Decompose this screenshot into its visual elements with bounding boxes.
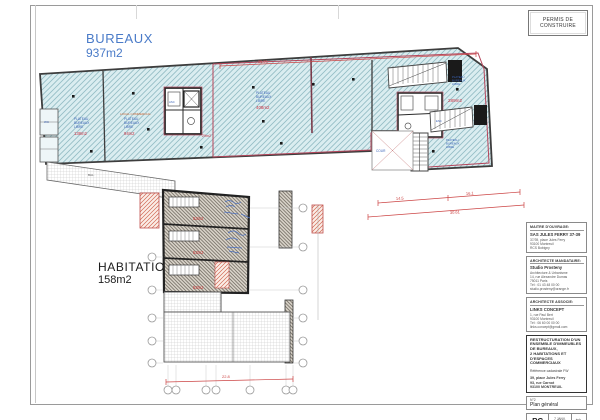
associate-heading: ARCHITECTE ASSOCIE: xyxy=(530,300,584,306)
central-core xyxy=(164,87,202,135)
owner-name: SAS JULES FERRY 37-39 xyxy=(530,232,584,237)
demolished-stair-left xyxy=(140,193,159,228)
architect-heading: ARCHITECTE MANDATAIRE: xyxy=(530,259,584,265)
titleblock-owner: MAITRE D'OUVRAGE: SAS JULES FERRY 37-39 … xyxy=(526,222,587,253)
room2-area: 94m2 xyxy=(124,131,135,136)
drawing-sheet: PERMIS DE CONSTRUIRE BUREAUX 937m2 HABIT… xyxy=(0,0,600,420)
titleblock-doc: N°2 Plan général xyxy=(526,396,587,410)
elevator-label: ASC xyxy=(169,100,175,104)
svg-text:LIBRE: LIBRE xyxy=(256,99,265,103)
room1-area: 138m2 xyxy=(74,131,87,136)
dim-mid3: 30.61 xyxy=(450,209,461,215)
cadastral-reference: Référence cadastrale FW xyxy=(530,369,584,373)
titleblock-architect: ARCHITECTE MANDATAIRE: Studio Prosteny A… xyxy=(526,256,587,295)
titleblock-project: RESTRUCTURATION D'UN ENSEMBLE D'IMMEUBLE… xyxy=(526,335,587,393)
phase-cell: PC xyxy=(527,414,549,420)
wc-label: WC xyxy=(44,120,50,124)
dim-mid1: 14.5 xyxy=(396,195,405,201)
titleblock: MAITRE D'OUVRAGE: SAS JULES FERRY 37-39 … xyxy=(526,222,587,420)
associate-name: LINKS CONCEPT xyxy=(530,307,584,312)
hab-room2-area: 53m2 xyxy=(193,250,204,255)
titleblock-associate: ARCHITECTE ASSOCIE: LINKS CONCEPT 1, rue… xyxy=(526,297,587,332)
svg-text:LIBRE: LIBRE xyxy=(124,125,133,129)
dim-bottom: 22.8 xyxy=(222,374,231,379)
scale-cell: éch. 1/100 xyxy=(572,414,586,420)
doc-name: Plan général xyxy=(530,402,583,408)
titleblock-stamp: PC 7 JANV. 2019 éch. 1/100 xyxy=(526,413,587,420)
dim-mid2: 16.1 xyxy=(466,190,475,196)
room2-heading: LOCAL COMMERCIAL xyxy=(120,112,151,116)
terrace xyxy=(164,292,290,362)
room4-area: 289m2 xyxy=(448,98,462,103)
hab-room3-area: 53m2 xyxy=(193,285,204,290)
room3-area: 408m2 xyxy=(256,105,270,110)
floor-plan-drawing: PLATEAU BUREAUX LIBRE 138m2 LOCAL COMMER… xyxy=(0,0,600,420)
balcony-label: BAL. xyxy=(88,173,95,177)
habitation-block xyxy=(163,190,250,293)
side-wall-upper xyxy=(279,191,292,248)
stair-central xyxy=(411,133,428,171)
core-area: 29m2 xyxy=(202,134,211,138)
owner-heading: MAITRE D'OUVRAGE: xyxy=(530,225,584,231)
courtyard-label: COUR xyxy=(376,149,386,153)
dim-top: 35.91 xyxy=(258,58,269,64)
stair-label: ESC xyxy=(436,119,442,123)
svg-text:LIBRE: LIBRE xyxy=(446,145,454,149)
date-cell: 7 JANV. 2019 xyxy=(549,414,571,420)
svg-text:LIBRE: LIBRE xyxy=(452,82,460,86)
architect-name: Studio Prosteny xyxy=(530,265,584,270)
hab-room1-area: 53m2 xyxy=(193,216,204,221)
demolished-stair-mid xyxy=(312,205,323,233)
svg-text:LIBRE: LIBRE xyxy=(74,125,83,129)
